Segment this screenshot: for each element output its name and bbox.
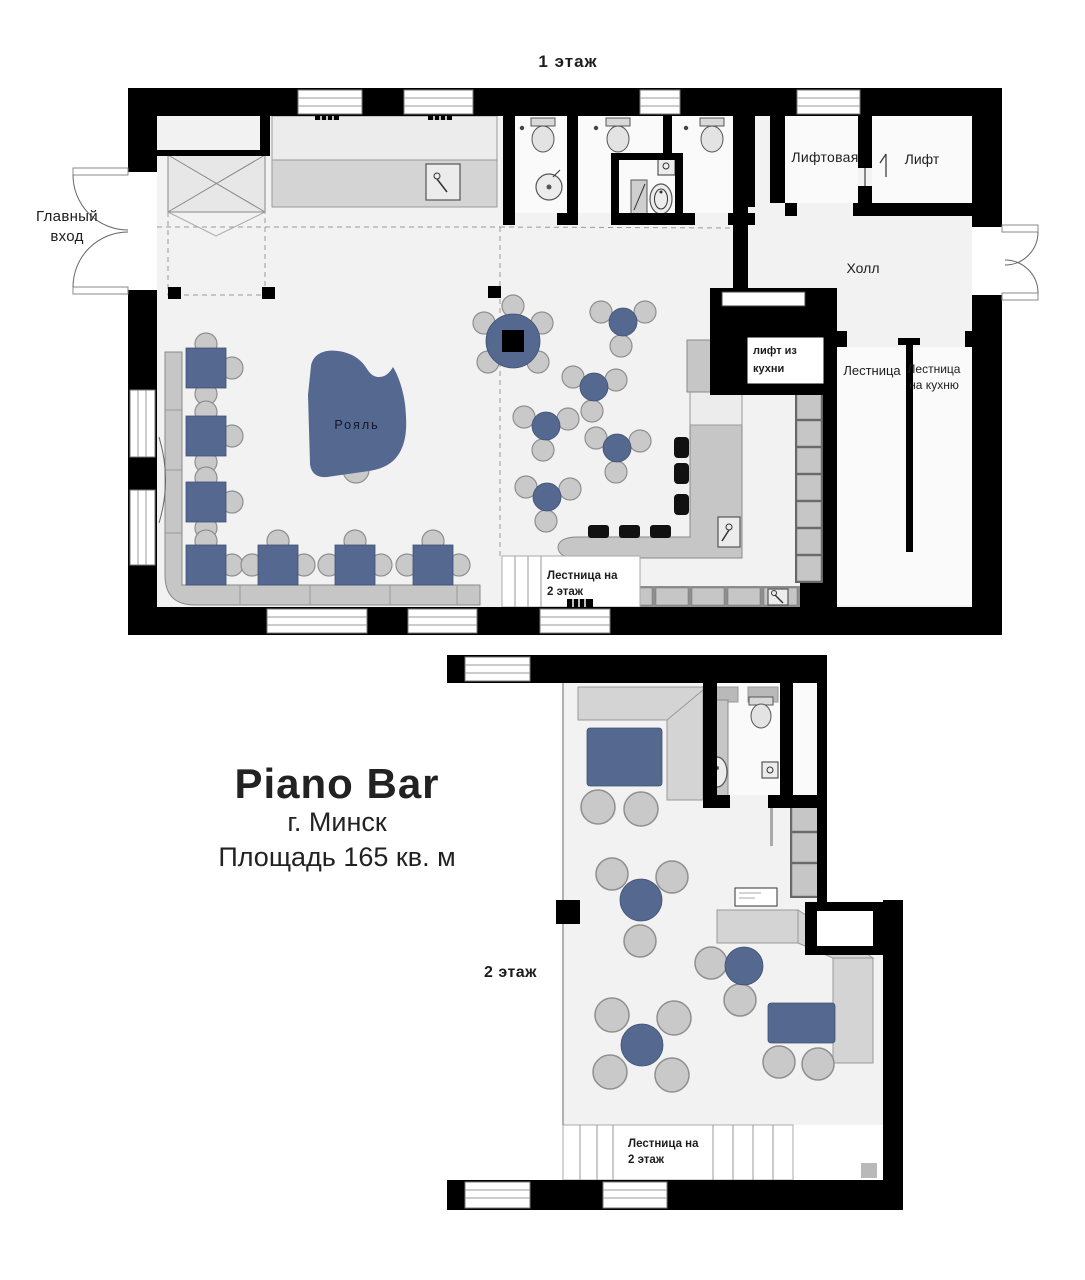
toilet-icon — [700, 118, 724, 152]
door-leaf — [770, 808, 773, 846]
toilet-icon — [531, 118, 555, 152]
elevator-shaft — [817, 911, 873, 946]
wall-niche — [861, 1163, 877, 1178]
floor1-plan — [73, 88, 1038, 635]
plan-drawing — [0, 0, 1085, 1280]
bottom-cabinets — [617, 586, 800, 607]
elevator-lobby-label: Лифтовая — [775, 148, 875, 166]
sink-icon — [718, 517, 740, 547]
floor2-stairs-label: Лестница на 2 этаж — [628, 1137, 706, 1168]
hall-entrance-doors — [972, 225, 1038, 300]
bar-counter-top — [272, 116, 497, 207]
vent-icon — [567, 599, 593, 607]
armchair — [763, 1046, 795, 1078]
floor2-duct — [793, 683, 817, 795]
shelving-unit — [795, 392, 823, 583]
mini-label — [735, 888, 777, 906]
wall-sink-icon — [658, 158, 675, 175]
armchair — [624, 792, 658, 826]
elevator-label: Лифт — [872, 150, 972, 168]
lounge-table — [587, 728, 662, 786]
armchair — [581, 790, 615, 824]
project-area: Площадь 165 кв. м — [187, 840, 487, 875]
project-city: г. Минск — [187, 805, 487, 840]
floor1-title: 1 этаж — [518, 51, 618, 73]
floor2-title: 2 этаж — [468, 963, 553, 984]
sink-icon — [768, 589, 788, 605]
kitchen-lift-label: лифт из кухни — [753, 343, 813, 378]
floor2-outside — [827, 655, 907, 902]
project-name: Piano Bar — [187, 757, 487, 812]
main-entrance-label: Главный вход — [32, 207, 102, 246]
hall-label: Холл — [813, 259, 913, 277]
sink-icon — [426, 164, 460, 200]
lounge-table — [768, 1003, 835, 1043]
stairs-to-kitchen-label: Лестница на кухню — [901, 362, 967, 393]
floor-plan-canvas: 1 этаж Главный вход Лифтовая Лифт Холл л… — [0, 0, 1085, 1280]
wall-sink-icon — [762, 762, 778, 778]
kitchen-lift-door — [722, 292, 805, 306]
stairs-label: Лестница — [835, 363, 909, 380]
toilet-icon — [749, 697, 773, 728]
floor2-plan — [447, 655, 907, 1210]
floor1-stairs-label: Лестница на 2 этаж — [547, 569, 619, 600]
piano-label: Рояль — [317, 417, 397, 433]
door-leaf-icon — [631, 180, 647, 214]
bidet-icon — [650, 184, 672, 214]
toilet-icon — [606, 118, 630, 152]
armchair — [802, 1048, 834, 1080]
